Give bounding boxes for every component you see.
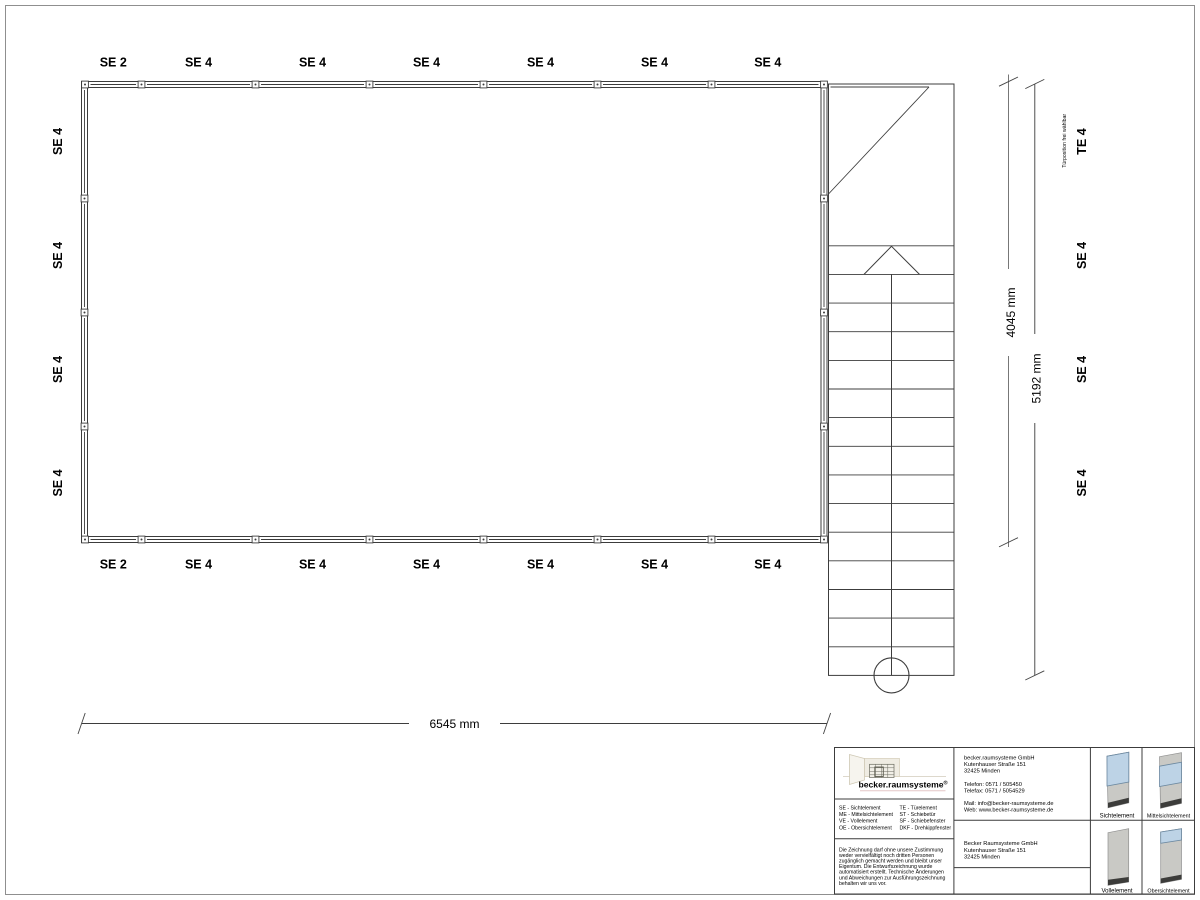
svg-text:ST - Schiebetür: ST - Schiebetür bbox=[900, 812, 936, 818]
svg-text:SE 4: SE 4 bbox=[1075, 242, 1089, 269]
svg-text:SE 4: SE 4 bbox=[527, 56, 554, 70]
svg-text:SE 4: SE 4 bbox=[641, 558, 668, 572]
svg-text:SE 4: SE 4 bbox=[51, 356, 65, 383]
svg-text:32425 Minden: 32425 Minden bbox=[964, 854, 1000, 860]
svg-text:SE 2: SE 2 bbox=[100, 56, 127, 70]
svg-text:DKF - Drehkippfenster: DKF - Drehkippfenster bbox=[900, 825, 952, 831]
svg-text:Mittelsichtelement: Mittelsichtelement bbox=[1147, 813, 1191, 819]
svg-text:SE 4: SE 4 bbox=[527, 558, 554, 572]
svg-text:SE 4: SE 4 bbox=[299, 558, 326, 572]
svg-text:32425 Minden: 32425 Minden bbox=[964, 769, 1000, 775]
svg-text:SE 4: SE 4 bbox=[1075, 469, 1089, 496]
svg-text:SE 2: SE 2 bbox=[100, 558, 127, 572]
svg-text:SE 4: SE 4 bbox=[754, 56, 781, 70]
svg-text:ME - Mittelsichtelement: ME - Mittelsichtelement bbox=[839, 812, 893, 818]
svg-text:SE 4: SE 4 bbox=[413, 56, 440, 70]
svg-text:Vollelement: Vollelement bbox=[1101, 888, 1132, 894]
svg-text:Kutenhauser Straße 151: Kutenhauser Straße 151 bbox=[964, 762, 1026, 768]
svg-text:VE - Vollelement: VE - Vollelement bbox=[839, 819, 878, 825]
svg-text:SE 4: SE 4 bbox=[1075, 356, 1089, 383]
svg-text:TE - Türelement: TE - Türelement bbox=[900, 805, 938, 811]
svg-text:Mail: info@becker-raumsysteme.: Mail: info@becker-raumsysteme.de bbox=[964, 801, 1054, 807]
svg-text:becker.raumsysteme®: becker.raumsysteme® bbox=[859, 780, 948, 790]
svg-text:4045 mm: 4045 mm bbox=[1004, 287, 1018, 337]
svg-text:SE 4: SE 4 bbox=[51, 128, 65, 155]
svg-text:SF - Schiebefenster: SF - Schiebefenster bbox=[900, 819, 946, 825]
svg-text:behalten wir uns vor.: behalten wir uns vor. bbox=[839, 881, 887, 887]
svg-text:Türposition frei wählbar: Türposition frei wählbar bbox=[1062, 114, 1068, 168]
svg-text:SE 4: SE 4 bbox=[413, 558, 440, 572]
svg-text:SE 4: SE 4 bbox=[754, 558, 781, 572]
svg-text:Telefon: 0571 / 505450: Telefon: 0571 / 505450 bbox=[964, 782, 1022, 788]
svg-text:SE 4: SE 4 bbox=[51, 242, 65, 269]
svg-text:6545 mm: 6545 mm bbox=[429, 717, 479, 731]
svg-text:SE 4: SE 4 bbox=[299, 56, 326, 70]
svg-text:SE - Sichtelement: SE - Sichtelement bbox=[839, 805, 881, 811]
svg-text:SE 4: SE 4 bbox=[51, 469, 65, 496]
svg-text:OE - Obersichtelement: OE - Obersichtelement bbox=[839, 825, 892, 831]
svg-text:SE 4: SE 4 bbox=[641, 56, 668, 70]
svg-text:SE 4: SE 4 bbox=[185, 558, 212, 572]
svg-text:Becker Raumsysteme GmbH: Becker Raumsysteme GmbH bbox=[964, 841, 1038, 847]
svg-text:Sichtelement: Sichtelement bbox=[1100, 813, 1135, 819]
svg-text:Web: www.becker-raumsysteme.de: Web: www.becker-raumsysteme.de bbox=[964, 808, 1053, 814]
svg-text:Obersichtelement: Obersichtelement bbox=[1147, 888, 1190, 894]
svg-text:SE 4: SE 4 bbox=[185, 56, 212, 70]
svg-text:5192 mm: 5192 mm bbox=[1030, 353, 1044, 403]
svg-text:TE 4: TE 4 bbox=[1075, 128, 1089, 154]
svg-text:Kutenhauser Straße 151: Kutenhauser Straße 151 bbox=[964, 848, 1026, 854]
svg-text:Telefax: 0571 / 5054529: Telefax: 0571 / 5054529 bbox=[964, 788, 1025, 794]
svg-text:becker.raumsysteme GmbH: becker.raumsysteme GmbH bbox=[964, 755, 1034, 761]
